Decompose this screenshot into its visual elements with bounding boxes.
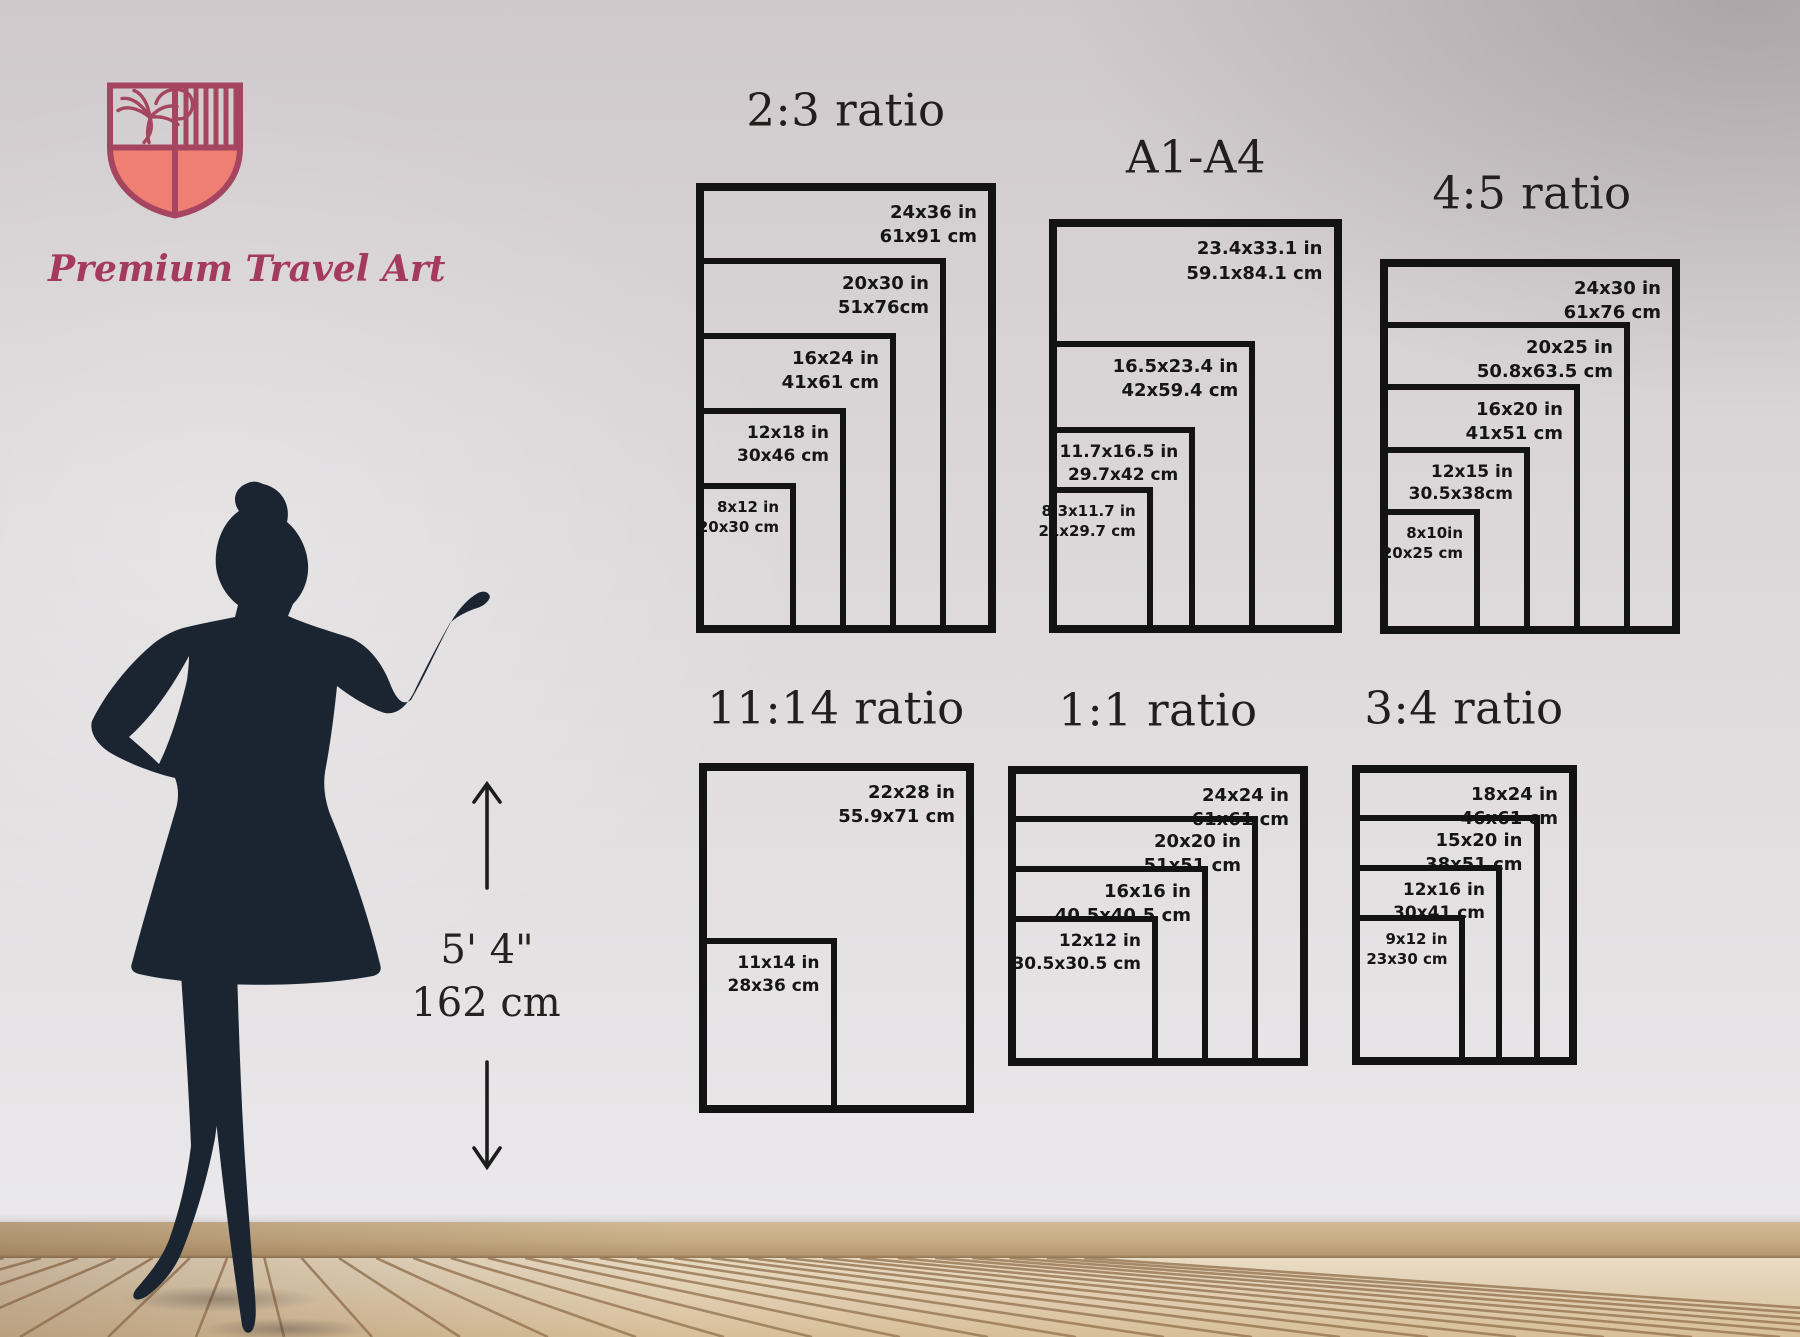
size-inches: 24x30 in <box>1564 277 1661 301</box>
shield-stripes <box>186 84 236 148</box>
size-cm: 30.5x38cm <box>1409 483 1513 506</box>
size-label: 11x14 in28x36 cm <box>728 952 820 998</box>
chart-title-ratio-11-14: 11:14 ratio <box>707 682 964 735</box>
size-inches: 20x30 in <box>838 272 929 296</box>
size-cm: 29.7x42 cm <box>1060 464 1179 487</box>
size-cm: 41x51 cm <box>1466 422 1563 446</box>
woman-silhouette <box>85 474 495 1336</box>
size-inches: 20x25 in <box>1477 336 1613 360</box>
chart-title-ratio-3-4: 3:4 ratio <box>1364 682 1563 735</box>
size-cm: 21x29.7 cm <box>1038 521 1135 541</box>
chart-title-ratio-4-5: 4:5 ratio <box>1432 167 1631 220</box>
size-label: 11.7x16.5 in29.7x42 cm <box>1060 441 1179 487</box>
size-inches: 9x12 in <box>1366 929 1447 949</box>
size-label: 16x20 in41x51 cm <box>1466 398 1563 447</box>
size-inches: 12x12 in <box>1012 930 1141 953</box>
size-inches: 23.4x33.1 in <box>1186 237 1322 261</box>
palm-tree-icon <box>118 89 193 142</box>
size-cm: 41x61 cm <box>782 371 879 395</box>
size-label: 16x24 in41x61 cm <box>782 347 879 396</box>
size-inches: 12x16 in <box>1393 879 1485 902</box>
size-cm: 23x30 cm <box>1366 949 1447 969</box>
size-inches: 8.3x11.7 in <box>1038 501 1135 521</box>
size-label: 16.5x23.4 in42x59.4 cm <box>1113 355 1239 404</box>
size-cm: 61x91 cm <box>880 225 977 249</box>
size-inches: 18x24 in <box>1461 783 1558 807</box>
size-label: 23.4x33.1 in59.1x84.1 cm <box>1186 237 1322 286</box>
size-cm: 28x36 cm <box>728 975 820 998</box>
size-inches: 12x15 in <box>1409 461 1513 484</box>
size-inches: 20x20 in <box>1144 830 1241 854</box>
height-arrows <box>467 775 507 1175</box>
size-inches: 22x28 in <box>838 781 955 805</box>
size-cm: 20x30 cm <box>698 517 779 537</box>
woman-body <box>91 482 490 985</box>
size-cm: 55.9x71 cm <box>838 805 955 829</box>
size-rect-ratio-4-5-8x10in: 8x10in20x25 cm <box>1380 509 1480 634</box>
size-inches: 24x36 in <box>880 201 977 225</box>
size-inches: 8x10in <box>1382 523 1463 543</box>
size-label: 8.3x11.7 in21x29.7 cm <box>1038 501 1135 542</box>
chart-title-ratio-1-1: 1:1 ratio <box>1058 684 1257 737</box>
size-rect-ratio-11-14-11x14in: 11x14 in28x36 cm <box>699 938 837 1113</box>
size-inches: 24x24 in <box>1192 784 1289 808</box>
size-cm: 50.8x63.5 cm <box>1477 360 1613 384</box>
size-label: 9x12 in23x30 cm <box>1366 929 1447 970</box>
size-guide-poster: Premium Travel Art 5' 4" 162 cm 2:3 ra <box>0 0 1800 1337</box>
size-inches: 12x18 in <box>737 422 829 445</box>
shield-outline <box>110 86 240 216</box>
size-cm: 42x59.4 cm <box>1113 379 1239 403</box>
size-label: 12x12 in30.5x30.5 cm <box>1012 930 1141 976</box>
arrow-up-icon <box>474 784 500 888</box>
size-label: 8x12 in20x30 cm <box>698 497 779 538</box>
size-rect-a-series-8.3x11.7in: 8.3x11.7 in21x29.7 cm <box>1049 487 1153 633</box>
size-cm: 51x76cm <box>838 296 929 320</box>
size-inches: 16x16 in <box>1055 880 1191 904</box>
brand-logo: Premium Travel Art <box>48 70 348 300</box>
size-rect-ratio-1-1-12x12in: 12x12 in30.5x30.5 cm <box>1008 916 1158 1066</box>
woman-leg-front <box>133 971 223 1300</box>
size-inches: 16x20 in <box>1466 398 1563 422</box>
size-rect-ratio-2-3-8x12in: 8x12 in20x30 cm <box>696 483 796 633</box>
chart-title-a-series: A1-A4 <box>1126 131 1266 184</box>
size-label: 24x36 in61x91 cm <box>880 201 977 250</box>
height-imperial: 5' 4" <box>440 927 533 973</box>
brand-name: Premium Travel Art <box>48 248 348 290</box>
size-label: 8x10in20x25 cm <box>1382 523 1463 564</box>
size-inches: 8x12 in <box>698 497 779 517</box>
size-rect-ratio-3-4-9x12in: 9x12 in23x30 cm <box>1352 915 1465 1065</box>
size-cm: 30x46 cm <box>737 445 829 468</box>
size-inches: 16.5x23.4 in <box>1113 355 1239 379</box>
size-cm: 59.1x84.1 cm <box>1186 262 1322 286</box>
chart-title-ratio-2-3: 2:3 ratio <box>746 84 945 137</box>
size-inches: 15x20 in <box>1425 829 1522 853</box>
size-label: 24x30 in61x76 cm <box>1564 277 1661 326</box>
size-label: 12x15 in30.5x38cm <box>1409 461 1513 507</box>
size-inches: 16x24 in <box>782 347 879 371</box>
size-label: 20x25 in50.8x63.5 cm <box>1477 336 1613 385</box>
shield-icon <box>100 75 250 225</box>
size-inches: 11.7x16.5 in <box>1060 441 1179 464</box>
size-label: 22x28 in55.9x71 cm <box>838 781 955 830</box>
size-label: 12x18 in30x46 cm <box>737 422 829 468</box>
size-inches: 11x14 in <box>728 952 820 975</box>
size-cm: 20x25 cm <box>1382 543 1463 563</box>
size-cm: 30.5x30.5 cm <box>1012 953 1141 976</box>
size-label: 20x30 in51x76cm <box>838 272 929 321</box>
arrow-down-icon <box>474 1062 500 1167</box>
height-metric: 162 cm <box>411 980 560 1026</box>
